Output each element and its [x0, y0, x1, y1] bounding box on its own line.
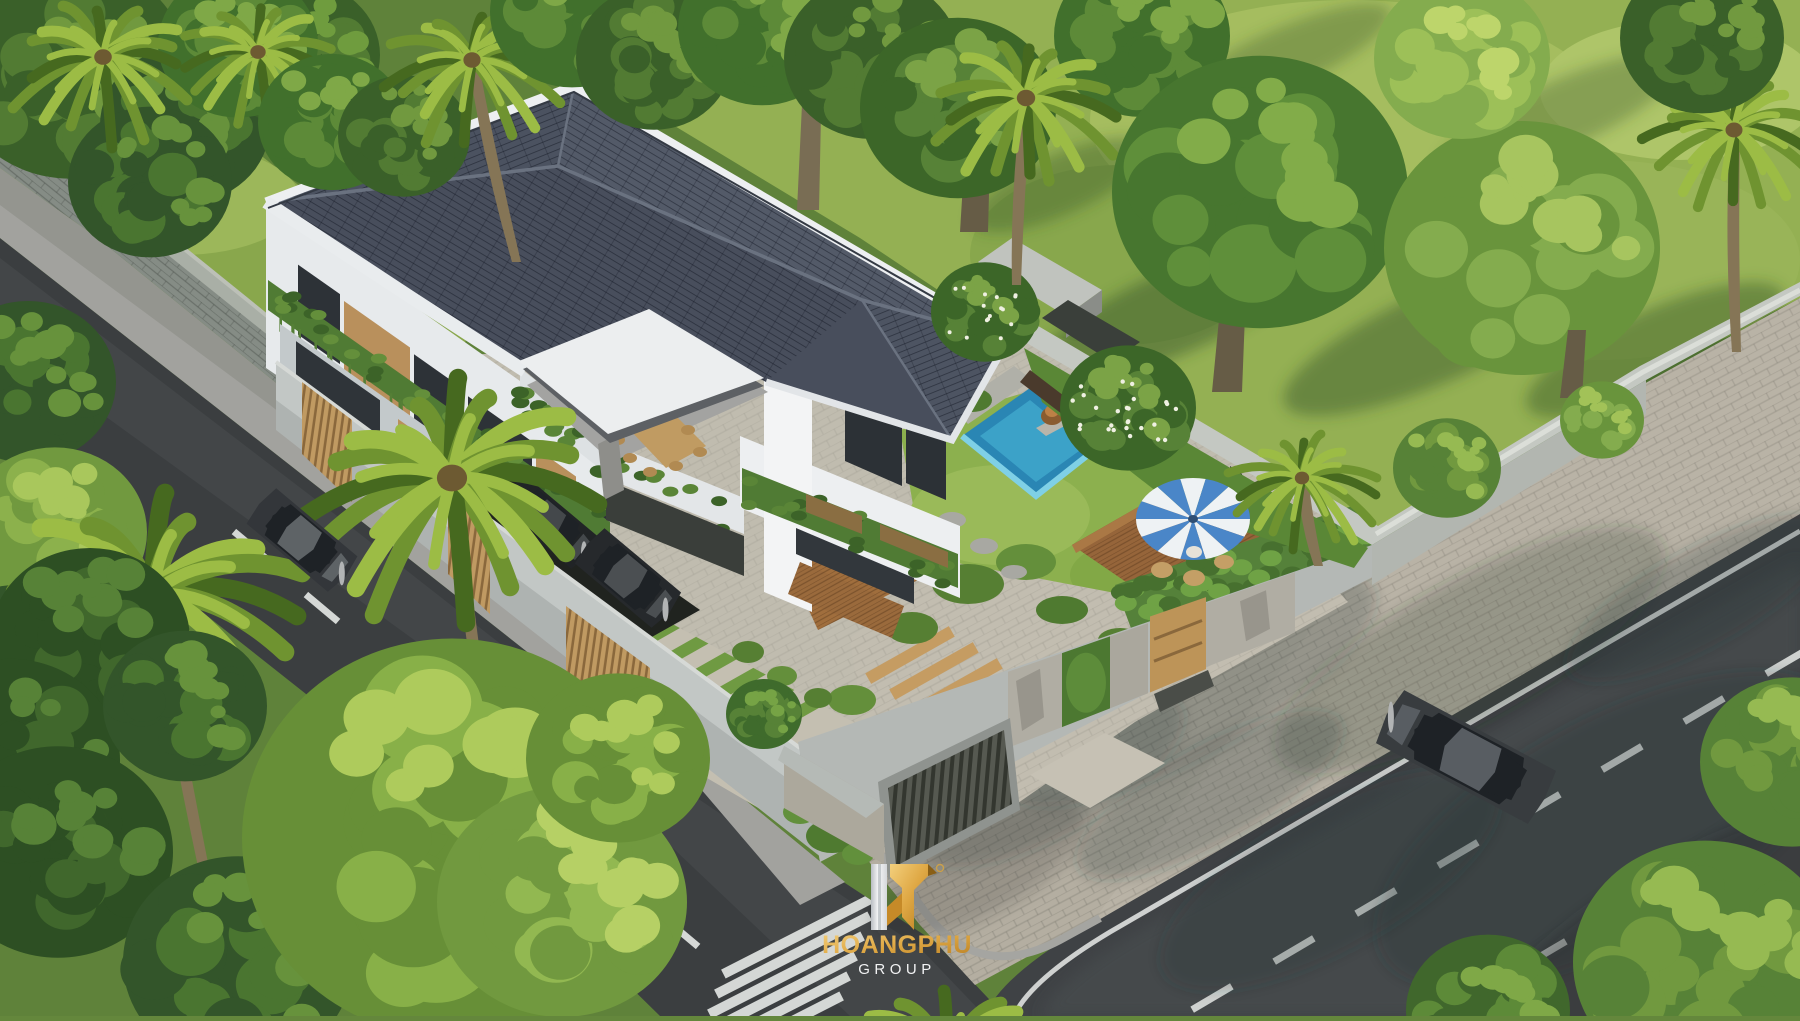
- svg-text:HOANGPHU: HOANGPHU: [822, 931, 972, 959]
- svg-text:GROUP: GROUP: [858, 961, 936, 978]
